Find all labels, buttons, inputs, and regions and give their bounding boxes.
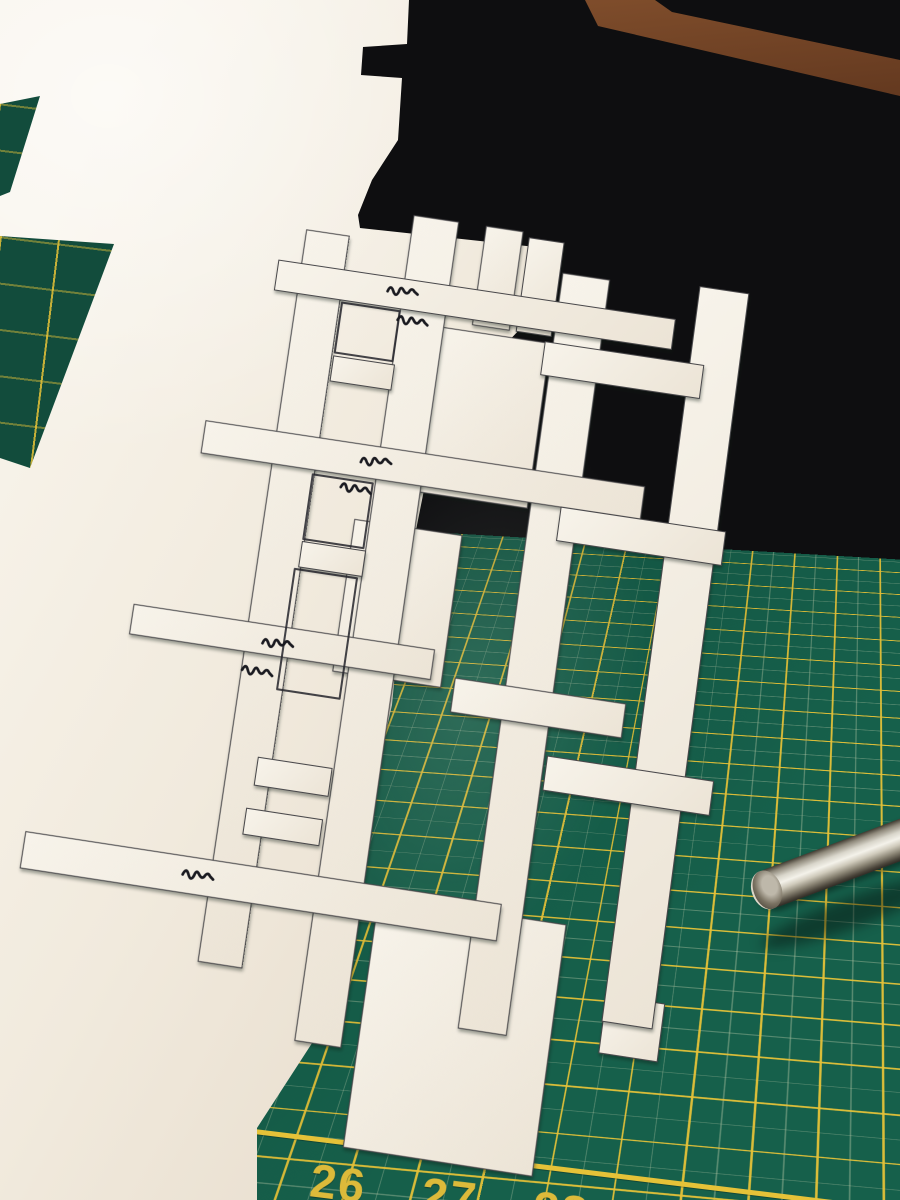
ink-rect xyxy=(334,301,401,362)
ruler-number: 26 xyxy=(307,1152,370,1200)
ruler-number: 29 xyxy=(640,1193,703,1200)
paper-panel xyxy=(343,896,567,1177)
photo-scene: 25 26 27 28 29 30 31 xyxy=(0,0,900,1200)
ruler-number: 27 xyxy=(418,1166,481,1200)
ruler-number: 28 xyxy=(529,1180,592,1200)
horizontal-bar xyxy=(20,831,502,941)
